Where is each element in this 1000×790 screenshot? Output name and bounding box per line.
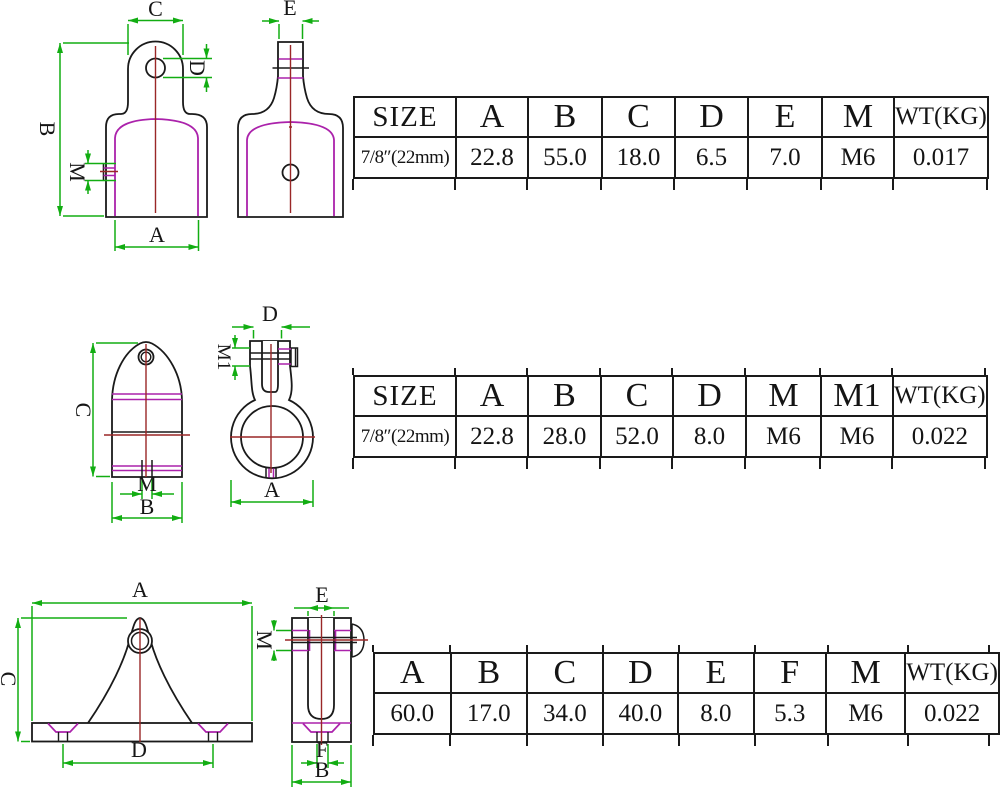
table-gridline-stub	[892, 179, 894, 190]
table-gridline-stub	[907, 735, 909, 746]
value-cell: 6.5	[675, 137, 748, 178]
table-gridline-stub	[352, 458, 354, 469]
header-cell: C	[601, 376, 673, 416]
dim-label-A: A	[149, 222, 165, 247]
table-gridline-stub	[526, 179, 528, 190]
header-cell: E	[678, 653, 753, 693]
table-header-row: A B C D E F M WT(KG)	[374, 653, 999, 693]
table-gridline-stub	[599, 368, 601, 375]
header-cell: D	[673, 376, 746, 416]
header-cell: E	[748, 97, 822, 137]
dim-label-M: M	[65, 162, 90, 182]
value-cell: 0.017	[894, 137, 988, 178]
dim-label-C: C	[0, 672, 21, 687]
header-cell: C	[527, 653, 603, 693]
header-cell: SIZE	[354, 97, 456, 137]
value-cell: 52.0	[601, 416, 673, 457]
table-gridline-stub	[891, 458, 893, 469]
jaw-slide-front-view: C M B	[71, 342, 190, 523]
dimension-E	[294, 608, 349, 616]
value-cell: 17.0	[451, 693, 528, 734]
header-cell: M	[826, 653, 905, 693]
dim-label-M: M	[252, 630, 277, 650]
table-gridline-stub	[454, 368, 456, 375]
table-gridline-stub	[454, 179, 456, 190]
dimension-A	[32, 603, 252, 721]
value-cell: 60.0	[374, 693, 451, 734]
header-cell: WT(KG)	[893, 376, 987, 416]
table-gridline-stub	[744, 458, 746, 469]
table-gridline-stub	[526, 458, 528, 469]
table-header-row: SIZE A B C D E M WT(KG)	[354, 97, 988, 137]
spec-table-eye-end-cap: SIZE A B C D E M WT(KG) 7/8″(22mm) 22.8 …	[353, 96, 989, 179]
dim-label-D: D	[262, 301, 278, 326]
table-data-row: 60.0 17.0 34.0 40.0 8.0 5.3 M6 0.022	[374, 693, 999, 734]
table-gridline-stub	[820, 179, 822, 190]
spec-table-deck-hinge: A B C D E F M WT(KG) 60.0 17.0 34.0 40.0…	[373, 652, 1000, 735]
table-gridline-stub	[819, 368, 821, 375]
dim-label-E: E	[283, 0, 296, 20]
table-gridline-stub	[372, 735, 374, 746]
header-cell: A	[456, 376, 528, 416]
table-gridline-stub	[372, 645, 374, 652]
value-cell: 55.0	[528, 137, 602, 178]
value-cell: 0.022	[905, 693, 999, 734]
table-gridline-stub	[746, 179, 748, 190]
table-gridline-stub	[678, 735, 680, 746]
spec-table-jaw-slide: SIZE A B C D M M1 WT(KG) 7/8″(22mm) 22.8…	[353, 375, 988, 458]
table-gridline-stub	[352, 179, 354, 190]
table-gridline-stub	[671, 368, 673, 375]
table-data-row: 7/8″(22mm) 22.8 55.0 18.0 6.5 7.0 M6 0.0…	[354, 137, 988, 178]
value-cell: M6	[746, 416, 821, 457]
deck-hinge-front-view: A C D	[0, 577, 252, 768]
dimension-D	[232, 327, 310, 339]
header-cell: M1	[821, 376, 893, 416]
table-gridline-stub	[891, 368, 893, 375]
drawing-eye-end-cap: C B D M A	[0, 0, 360, 270]
table-gridline-stub	[454, 458, 456, 469]
table-header-row: SIZE A B C D M M1 WT(KG)	[354, 376, 987, 416]
dim-label-C: C	[71, 403, 96, 418]
dim-label-D: D	[185, 60, 210, 76]
header-cell: M	[746, 376, 821, 416]
table-gridline-stub	[988, 645, 990, 652]
value-cell: M6	[821, 416, 893, 457]
header-cell: A	[374, 653, 451, 693]
header-cell: B	[528, 376, 601, 416]
jaw-slide-side-view: D M1 A	[213, 301, 315, 507]
table-gridline-stub	[986, 179, 988, 190]
table-gridline-stub	[907, 645, 909, 652]
dim-label-B: B	[140, 494, 155, 519]
dim-label-M: M	[137, 471, 157, 496]
table-gridline-stub	[678, 645, 680, 652]
table-gridline-stub	[819, 458, 821, 469]
header-cell: WT(KG)	[894, 97, 988, 137]
value-cell: M6	[826, 693, 905, 734]
value-cell: 34.0	[527, 693, 603, 734]
table-data-row: 7/8″(22mm) 22.8 28.0 52.0 8.0 M6 M6 0.02…	[354, 416, 987, 457]
drawing-jaw-slide: C M B D M1	[60, 300, 390, 535]
header-cell: A	[456, 97, 528, 137]
value-cell: 7/8″(22mm)	[354, 137, 456, 178]
table-gridline-stub	[526, 735, 528, 746]
bolt-head	[291, 348, 298, 367]
table-gridline-stub	[671, 458, 673, 469]
header-cell: B	[451, 653, 528, 693]
table-gridline-stub	[449, 735, 451, 746]
table-gridline-stub	[526, 368, 528, 375]
header-cell: B	[528, 97, 602, 137]
value-cell: 8.0	[678, 693, 753, 734]
header-cell: D	[603, 653, 679, 693]
table-gridline-stub	[754, 735, 756, 746]
header-cell: F	[754, 653, 826, 693]
value-cell: 18.0	[602, 137, 675, 178]
table-gridline-stub	[352, 368, 354, 375]
table-gridline-stub	[827, 645, 829, 652]
header-cell: D	[675, 97, 748, 137]
dim-label-D: D	[131, 737, 147, 762]
table-gridline-stub	[744, 368, 746, 375]
table-gridline-stub	[602, 645, 604, 652]
table-gridline-stub	[754, 645, 756, 652]
value-cell: 28.0	[528, 416, 601, 457]
value-cell: 22.8	[456, 137, 528, 178]
table-gridline-stub	[984, 368, 986, 375]
dim-label-A: A	[264, 477, 280, 502]
header-cell: M	[822, 97, 894, 137]
drawing-deck-hinge: A C D E M	[0, 575, 375, 790]
header-cell: SIZE	[354, 376, 456, 416]
table-gridline-stub	[449, 645, 451, 652]
table-gridline-stub	[984, 458, 986, 469]
dim-label-E: E	[315, 582, 328, 607]
table-gridline-stub	[988, 735, 990, 746]
table-gridline-stub	[827, 735, 829, 746]
header-cell: C	[602, 97, 675, 137]
deck-hinge-side-view: E M F B	[252, 582, 368, 787]
table-gridline-stub	[602, 735, 604, 746]
value-cell: M6	[822, 137, 894, 178]
value-cell: 40.0	[603, 693, 679, 734]
dim-label-B: B	[35, 122, 60, 137]
eye-end-front-view: C B D M A	[35, 0, 212, 251]
eye-end-side-view: E	[238, 0, 343, 217]
value-cell: 7.0	[748, 137, 822, 178]
table-gridline-stub	[673, 179, 675, 190]
table-gridline-stub	[599, 458, 601, 469]
dim-label-B: B	[315, 757, 330, 782]
dimension-E	[262, 21, 319, 39]
value-cell: 22.8	[456, 416, 528, 457]
value-cell: 0.022	[893, 416, 987, 457]
value-cell: 7/8″(22mm)	[354, 416, 456, 457]
spec-sheet-page: { "colors": { "background": "#ffffff", "…	[0, 0, 1000, 790]
table-gridline-stub	[600, 179, 602, 190]
value-cell: 8.0	[673, 416, 746, 457]
dim-label-A: A	[132, 577, 148, 602]
dim-label-M1: M1	[213, 344, 234, 370]
jaw-slot	[262, 341, 278, 392]
value-cell: 5.3	[754, 693, 826, 734]
header-cell: WT(KG)	[905, 653, 999, 693]
table-gridline-stub	[526, 645, 528, 652]
dim-label-C: C	[148, 0, 163, 21]
